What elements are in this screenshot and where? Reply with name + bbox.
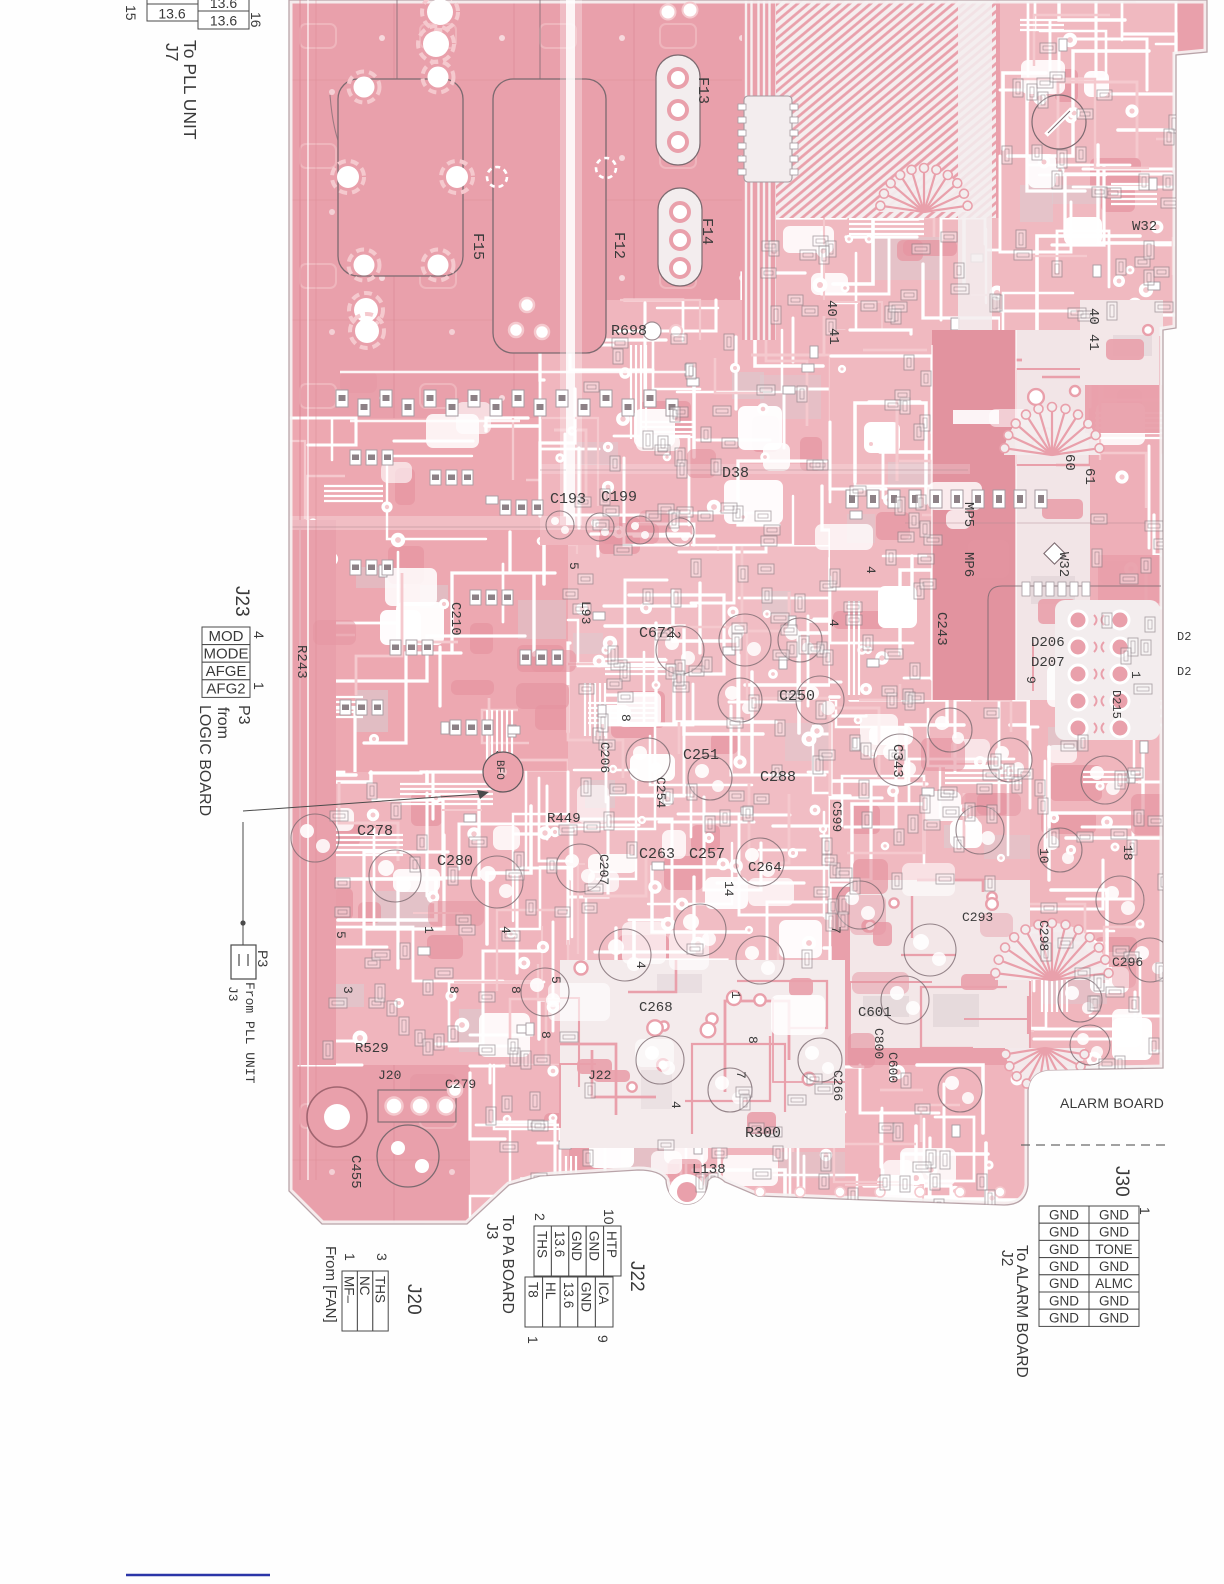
svg-text:C257: C257: [689, 846, 725, 863]
svg-text:THS: THS: [534, 1231, 549, 1258]
svg-text:GND: GND: [578, 1282, 593, 1312]
svg-text:C601: C601: [858, 1005, 892, 1021]
svg-text:J20: J20: [403, 1284, 424, 1315]
svg-text:3: 3: [340, 986, 355, 994]
svg-text:AFG2: AFG2: [206, 681, 245, 698]
svg-text:5: 5: [566, 562, 581, 570]
svg-text:ALMC: ALMC: [1095, 1276, 1133, 1291]
svg-text:C343: C343: [889, 744, 905, 778]
svg-text:J3: J3: [483, 1223, 500, 1239]
svg-text:R300: R300: [745, 1125, 781, 1142]
svg-text:TONE: TONE: [1095, 1242, 1132, 1257]
svg-text:MP6: MP6: [960, 552, 976, 577]
svg-text:To PLL UNIT: To PLL UNIT: [180, 40, 200, 140]
svg-text:4: 4: [633, 961, 648, 969]
svg-text:GND: GND: [1099, 1207, 1129, 1222]
svg-text:J7: J7: [162, 43, 182, 61]
svg-text:HTP: HTP: [604, 1231, 619, 1258]
svg-text:C250: C250: [779, 688, 815, 705]
svg-text:D38: D38: [722, 465, 749, 482]
svg-text:C278: C278: [357, 823, 393, 840]
svg-text:7: 7: [828, 926, 843, 934]
svg-text:F12: F12: [610, 232, 627, 259]
svg-text:13.6: 13.6: [210, 0, 237, 11]
svg-text:MP5: MP5: [960, 502, 976, 527]
svg-text:40: 40: [823, 300, 839, 317]
svg-text:1: 1: [342, 1253, 358, 1261]
svg-text:GND: GND: [1049, 1259, 1079, 1274]
svg-text:C199: C199: [601, 489, 637, 506]
svg-text:16: 16: [248, 12, 264, 28]
svg-text:MOD: MOD: [209, 628, 244, 645]
svg-text:GND: GND: [1049, 1293, 1079, 1308]
svg-text:C206: C206: [597, 742, 612, 773]
svg-text:13.6: 13.6: [552, 1231, 567, 1257]
svg-text:C251: C251: [683, 747, 719, 764]
svg-text:MODE: MODE: [204, 646, 249, 663]
svg-text:W32: W32: [1055, 552, 1071, 577]
svg-text:LOGIC BOARD: LOGIC BOARD: [196, 705, 213, 816]
svg-text:4: 4: [826, 619, 841, 627]
svg-text:13.6: 13.6: [158, 6, 185, 22]
svg-text:8: 8: [446, 986, 461, 994]
svg-text:BFO: BFO: [493, 760, 505, 780]
svg-text:D2: D2: [1177, 665, 1191, 679]
svg-text:R698: R698: [611, 323, 647, 340]
svg-text:GND: GND: [1049, 1311, 1079, 1326]
svg-text:GND: GND: [1049, 1207, 1079, 1222]
svg-text:15: 15: [123, 5, 139, 21]
svg-text:F13: F13: [694, 77, 711, 104]
svg-text:1: 1: [728, 991, 743, 999]
svg-text:C263: C263: [639, 846, 675, 863]
svg-text:C266: C266: [830, 1070, 845, 1101]
svg-text:GND: GND: [1049, 1242, 1079, 1257]
svg-text:GND: GND: [1099, 1293, 1129, 1308]
svg-text:8: 8: [745, 1036, 760, 1044]
svg-text:C599: C599: [829, 801, 844, 832]
svg-text:J22: J22: [626, 1261, 647, 1292]
svg-text:1: 1: [525, 1336, 541, 1344]
svg-text:T8: T8: [526, 1282, 541, 1298]
svg-text:R449: R449: [547, 811, 581, 827]
svg-text:C193: C193: [550, 491, 586, 508]
svg-text:41: 41: [825, 328, 841, 345]
svg-text:D206: D206: [1031, 635, 1065, 651]
svg-text:C296: C296: [1112, 955, 1143, 970]
svg-text:C254: C254: [653, 777, 668, 808]
svg-text:GND: GND: [1099, 1311, 1129, 1326]
svg-text:From PLL UNIT: From PLL UNIT: [242, 982, 257, 1084]
svg-text:R243: R243: [293, 645, 309, 679]
svg-text:9: 9: [1023, 676, 1038, 684]
svg-text:18: 18: [1120, 845, 1135, 861]
svg-text:10: 10: [1036, 848, 1051, 864]
svg-text:J2: J2: [998, 1250, 1015, 1266]
svg-text:9: 9: [595, 1335, 611, 1343]
svg-text:D207: D207: [1031, 655, 1065, 671]
svg-text:8: 8: [508, 986, 523, 994]
svg-text:AFGE: AFGE: [206, 663, 247, 680]
svg-text:from: from: [214, 707, 231, 739]
svg-text:4: 4: [668, 1101, 683, 1109]
svg-text:C600: C600: [885, 1052, 900, 1083]
svg-text:C298: C298: [1036, 920, 1051, 951]
svg-text:GND: GND: [1049, 1225, 1079, 1240]
svg-text:1: 1: [421, 926, 436, 934]
svg-text:C293: C293: [962, 910, 993, 925]
svg-text:C455: C455: [347, 1155, 363, 1189]
svg-text:J22: J22: [588, 1068, 611, 1083]
svg-text:C207: C207: [596, 854, 611, 885]
svg-text:4: 4: [251, 631, 267, 639]
svg-text:HL: HL: [543, 1282, 558, 1300]
svg-text:NC: NC: [357, 1276, 372, 1296]
svg-text:J20: J20: [378, 1068, 401, 1083]
svg-text:61: 61: [1081, 468, 1097, 485]
svg-text:1: 1: [1128, 671, 1143, 679]
svg-text:C800: C800: [871, 1028, 886, 1059]
svg-text:C268: C268: [639, 1000, 673, 1016]
svg-text:R529: R529: [355, 1041, 389, 1057]
svg-text:L138: L138: [692, 1162, 726, 1178]
svg-text:13.6: 13.6: [561, 1282, 576, 1308]
svg-text:MF–: MF–: [342, 1276, 357, 1303]
svg-text:GND: GND: [1049, 1276, 1079, 1291]
svg-text:8: 8: [538, 1031, 553, 1039]
svg-text:To PA BOARD: To PA BOARD: [499, 1215, 516, 1314]
svg-text:2: 2: [668, 631, 683, 639]
svg-text:From [FAN]: From [FAN]: [322, 1246, 339, 1323]
svg-text:1: 1: [251, 682, 267, 690]
svg-text:C210: C210: [447, 602, 463, 636]
svg-text:7: 7: [733, 1071, 748, 1079]
svg-text:8: 8: [618, 714, 633, 722]
svg-text:J30: J30: [1111, 1166, 1132, 1197]
svg-text:C264: C264: [748, 860, 782, 876]
svg-text:5: 5: [333, 931, 348, 939]
svg-text:4: 4: [863, 566, 878, 574]
svg-text:GND: GND: [587, 1231, 602, 1261]
svg-text:4: 4: [498, 926, 513, 934]
svg-text:F15: F15: [469, 233, 486, 260]
svg-text:ICA: ICA: [596, 1282, 611, 1305]
svg-text:ALARM BOARD: ALARM BOARD: [1060, 1095, 1164, 1111]
svg-text:C243: C243: [933, 612, 949, 646]
svg-text:P3: P3: [255, 950, 271, 967]
svg-text:D2: D2: [1177, 630, 1191, 644]
svg-text:C280: C280: [437, 853, 473, 870]
svg-text:J3: J3: [225, 986, 240, 1002]
svg-text:41: 41: [1085, 334, 1101, 351]
svg-text:P3: P3: [235, 705, 252, 725]
svg-text:W32: W32: [1132, 219, 1157, 235]
svg-text:GND: GND: [1099, 1259, 1129, 1274]
svg-text:L93: L93: [578, 601, 593, 624]
svg-text:THS: THS: [372, 1276, 387, 1303]
svg-text:3: 3: [374, 1253, 390, 1261]
svg-text:F14: F14: [698, 218, 715, 245]
svg-text:2: 2: [532, 1213, 548, 1221]
svg-text:10: 10: [601, 1209, 617, 1225]
svg-text:60: 60: [1061, 454, 1077, 471]
svg-text:GND: GND: [569, 1231, 584, 1261]
svg-text:5: 5: [548, 976, 563, 984]
svg-text:14: 14: [721, 881, 736, 897]
svg-text:C279: C279: [445, 1077, 476, 1092]
svg-text:40: 40: [1085, 308, 1101, 325]
svg-text:13.6: 13.6: [210, 13, 237, 29]
svg-text:C288: C288: [760, 769, 796, 786]
svg-text:D215: D215: [1109, 690, 1123, 719]
svg-text:GND: GND: [1099, 1225, 1129, 1240]
svg-text:J23: J23: [231, 586, 252, 617]
